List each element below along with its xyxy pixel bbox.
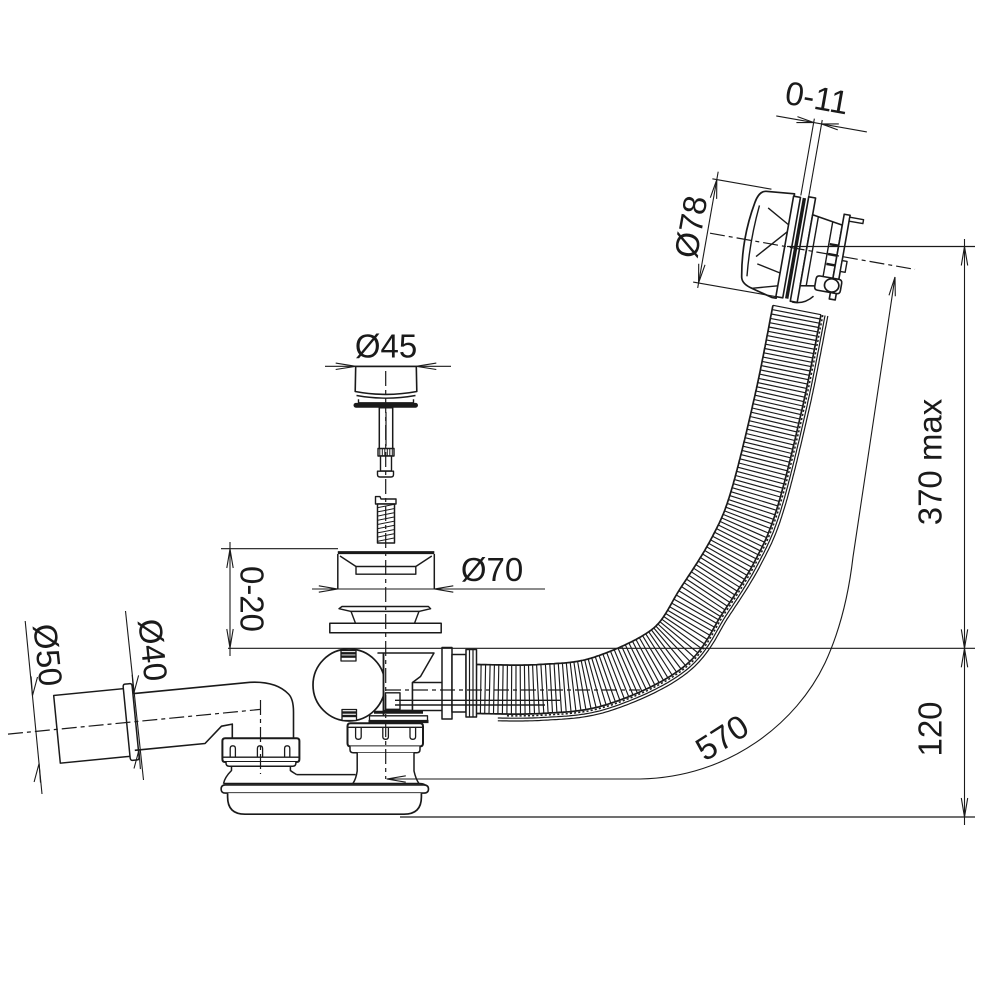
- svg-text:Ø45: Ø45: [355, 328, 417, 365]
- svg-text:370 max: 370 max: [912, 398, 949, 525]
- svg-text:120: 120: [912, 701, 949, 756]
- svg-text:Ø50: Ø50: [26, 622, 69, 688]
- svg-text:Ø70: Ø70: [461, 551, 523, 588]
- svg-text:0-20: 0-20: [234, 566, 271, 632]
- svg-text:Ø40: Ø40: [131, 617, 174, 683]
